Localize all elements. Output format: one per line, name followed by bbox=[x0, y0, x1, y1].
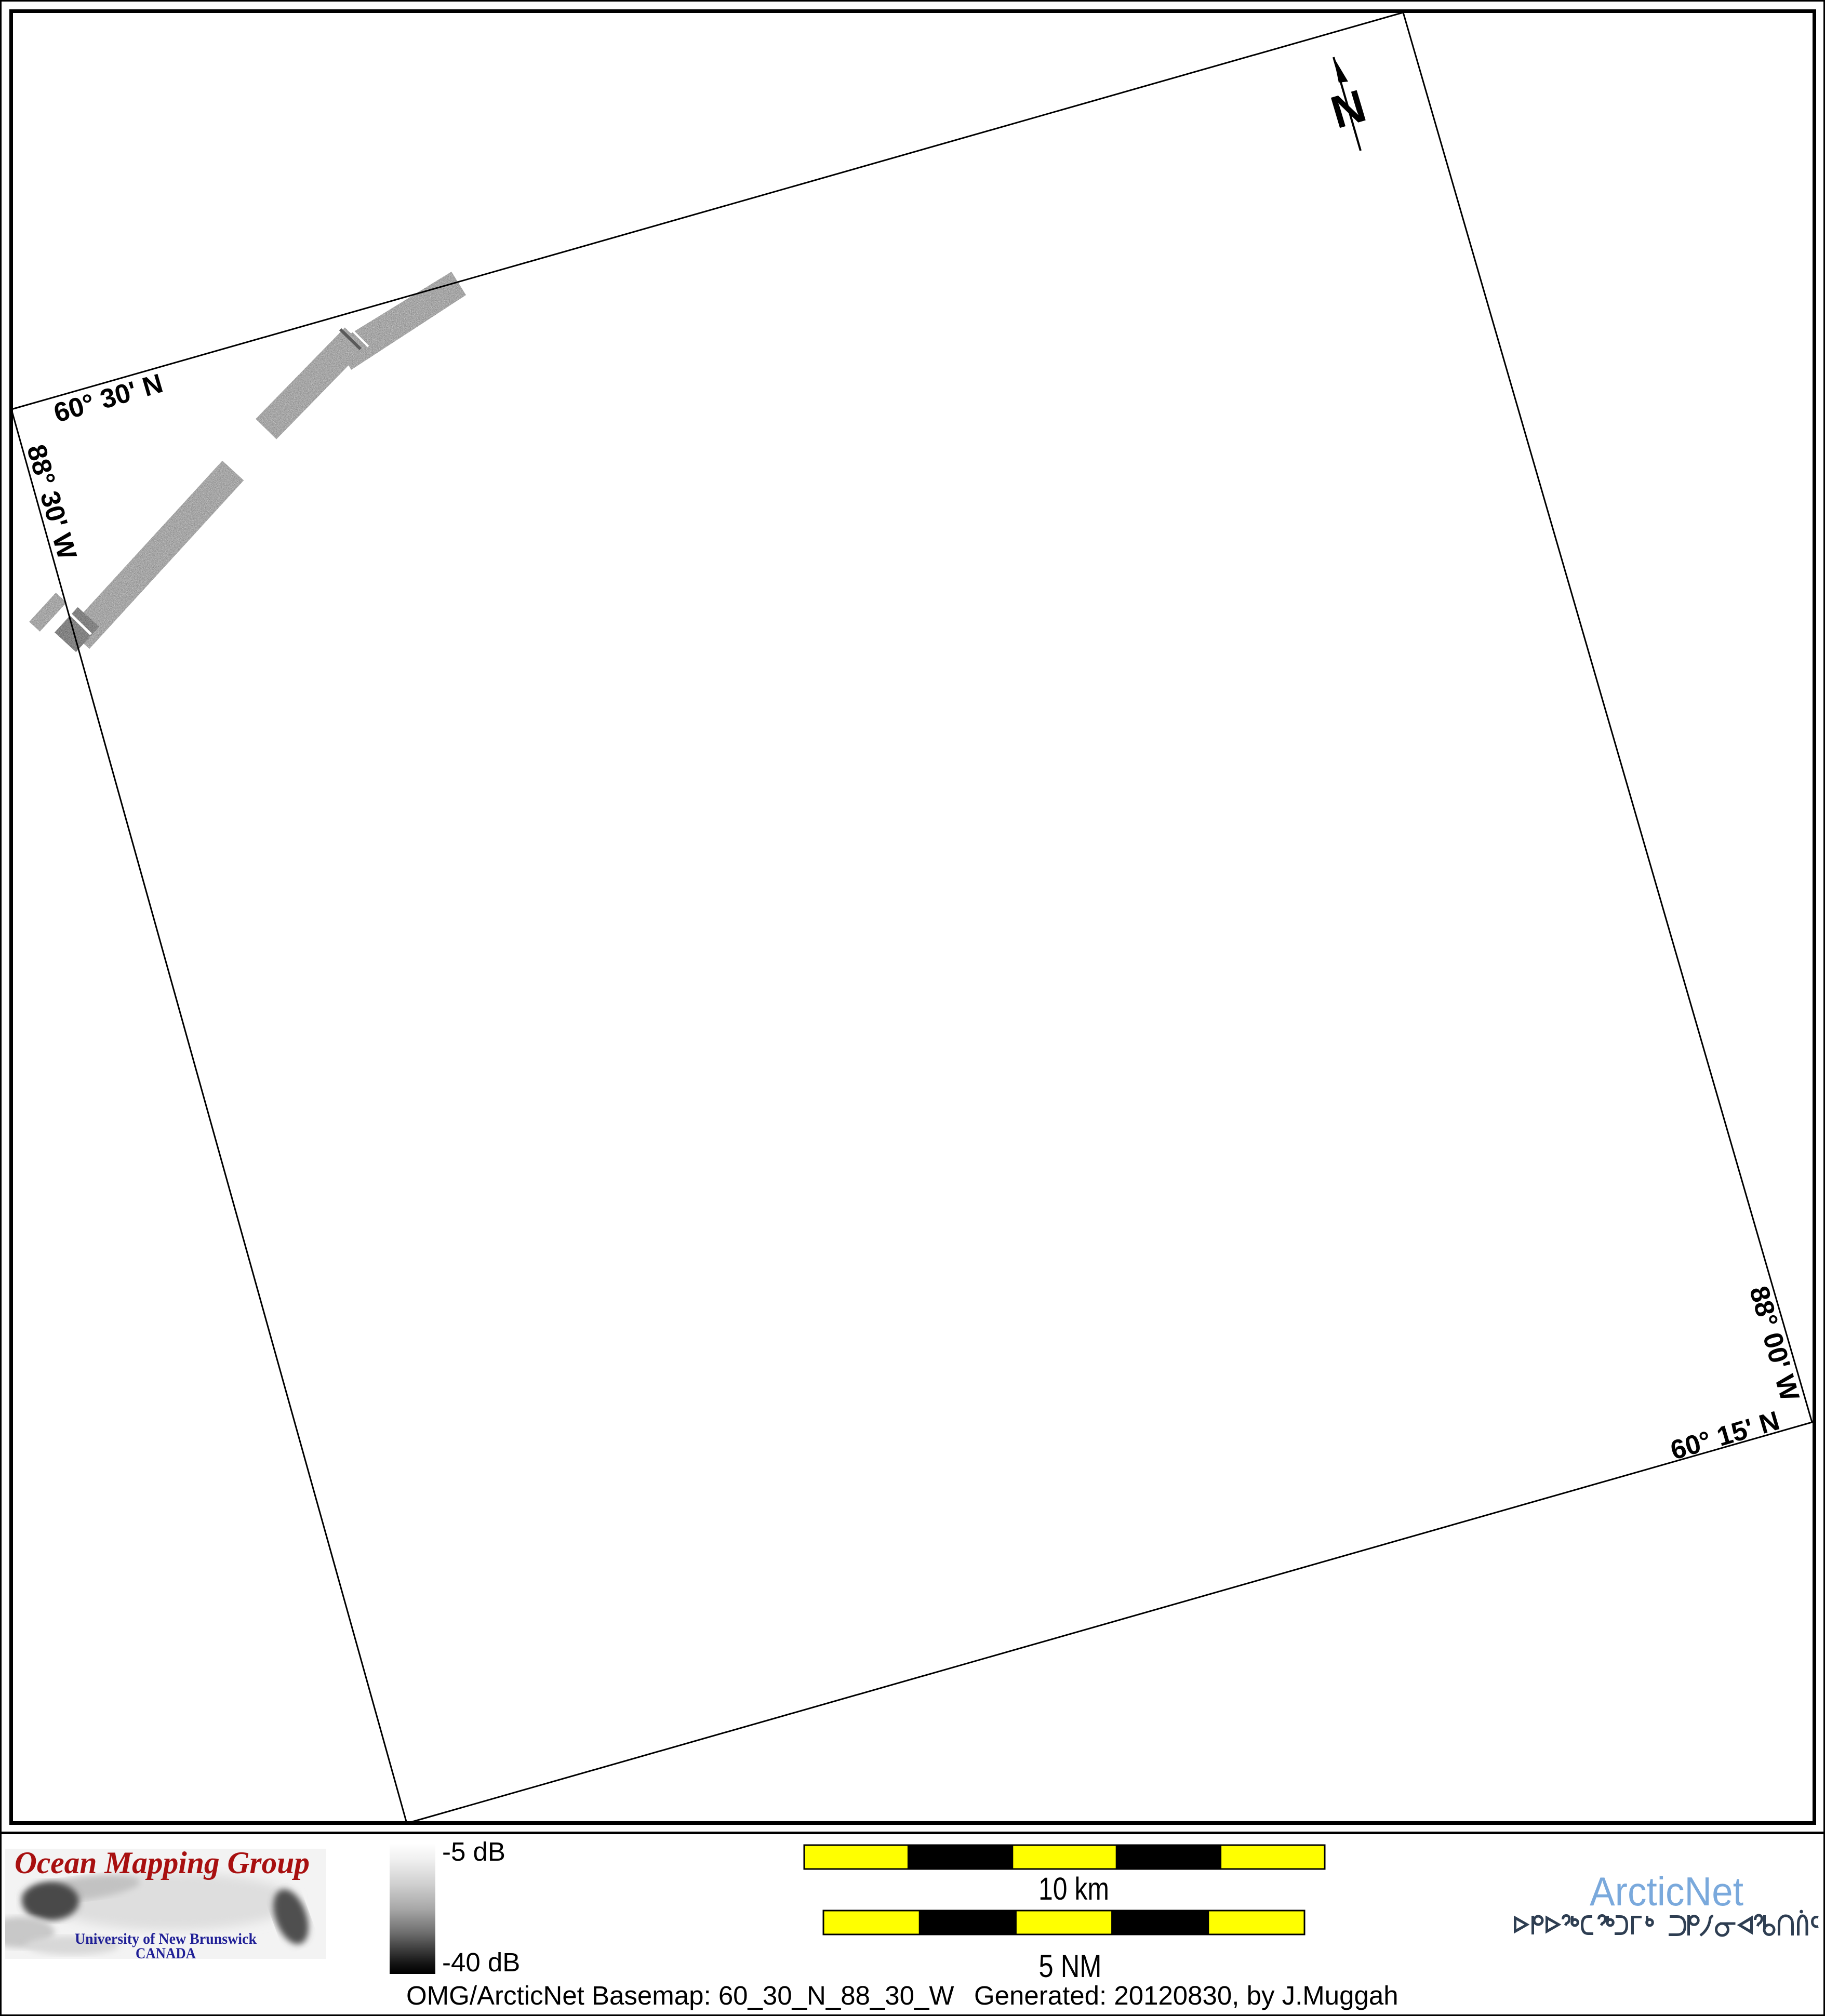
svg-text:CANADA: CANADA bbox=[136, 1945, 196, 1962]
svg-text:Ocean Mapping Group: Ocean Mapping Group bbox=[15, 1846, 310, 1880]
svg-text:-40 dB: -40 dB bbox=[442, 1947, 520, 1977]
svg-text:10 km: 10 km bbox=[1038, 1871, 1109, 1906]
svg-text:ArcticNet: ArcticNet bbox=[1590, 1868, 1743, 1914]
svg-text:Generated: 20120830, by J.Mugg: Generated: 20120830, by J.Muggah bbox=[974, 1981, 1398, 2010]
svg-text:OMG/ArcticNet Basemap: 60_30_N: OMG/ArcticNet Basemap: 60_30_N_88_30_W bbox=[406, 1981, 954, 2010]
svg-text:5 NM: 5 NM bbox=[1039, 1948, 1102, 1984]
svg-text:-5 dB: -5 dB bbox=[442, 1837, 505, 1866]
